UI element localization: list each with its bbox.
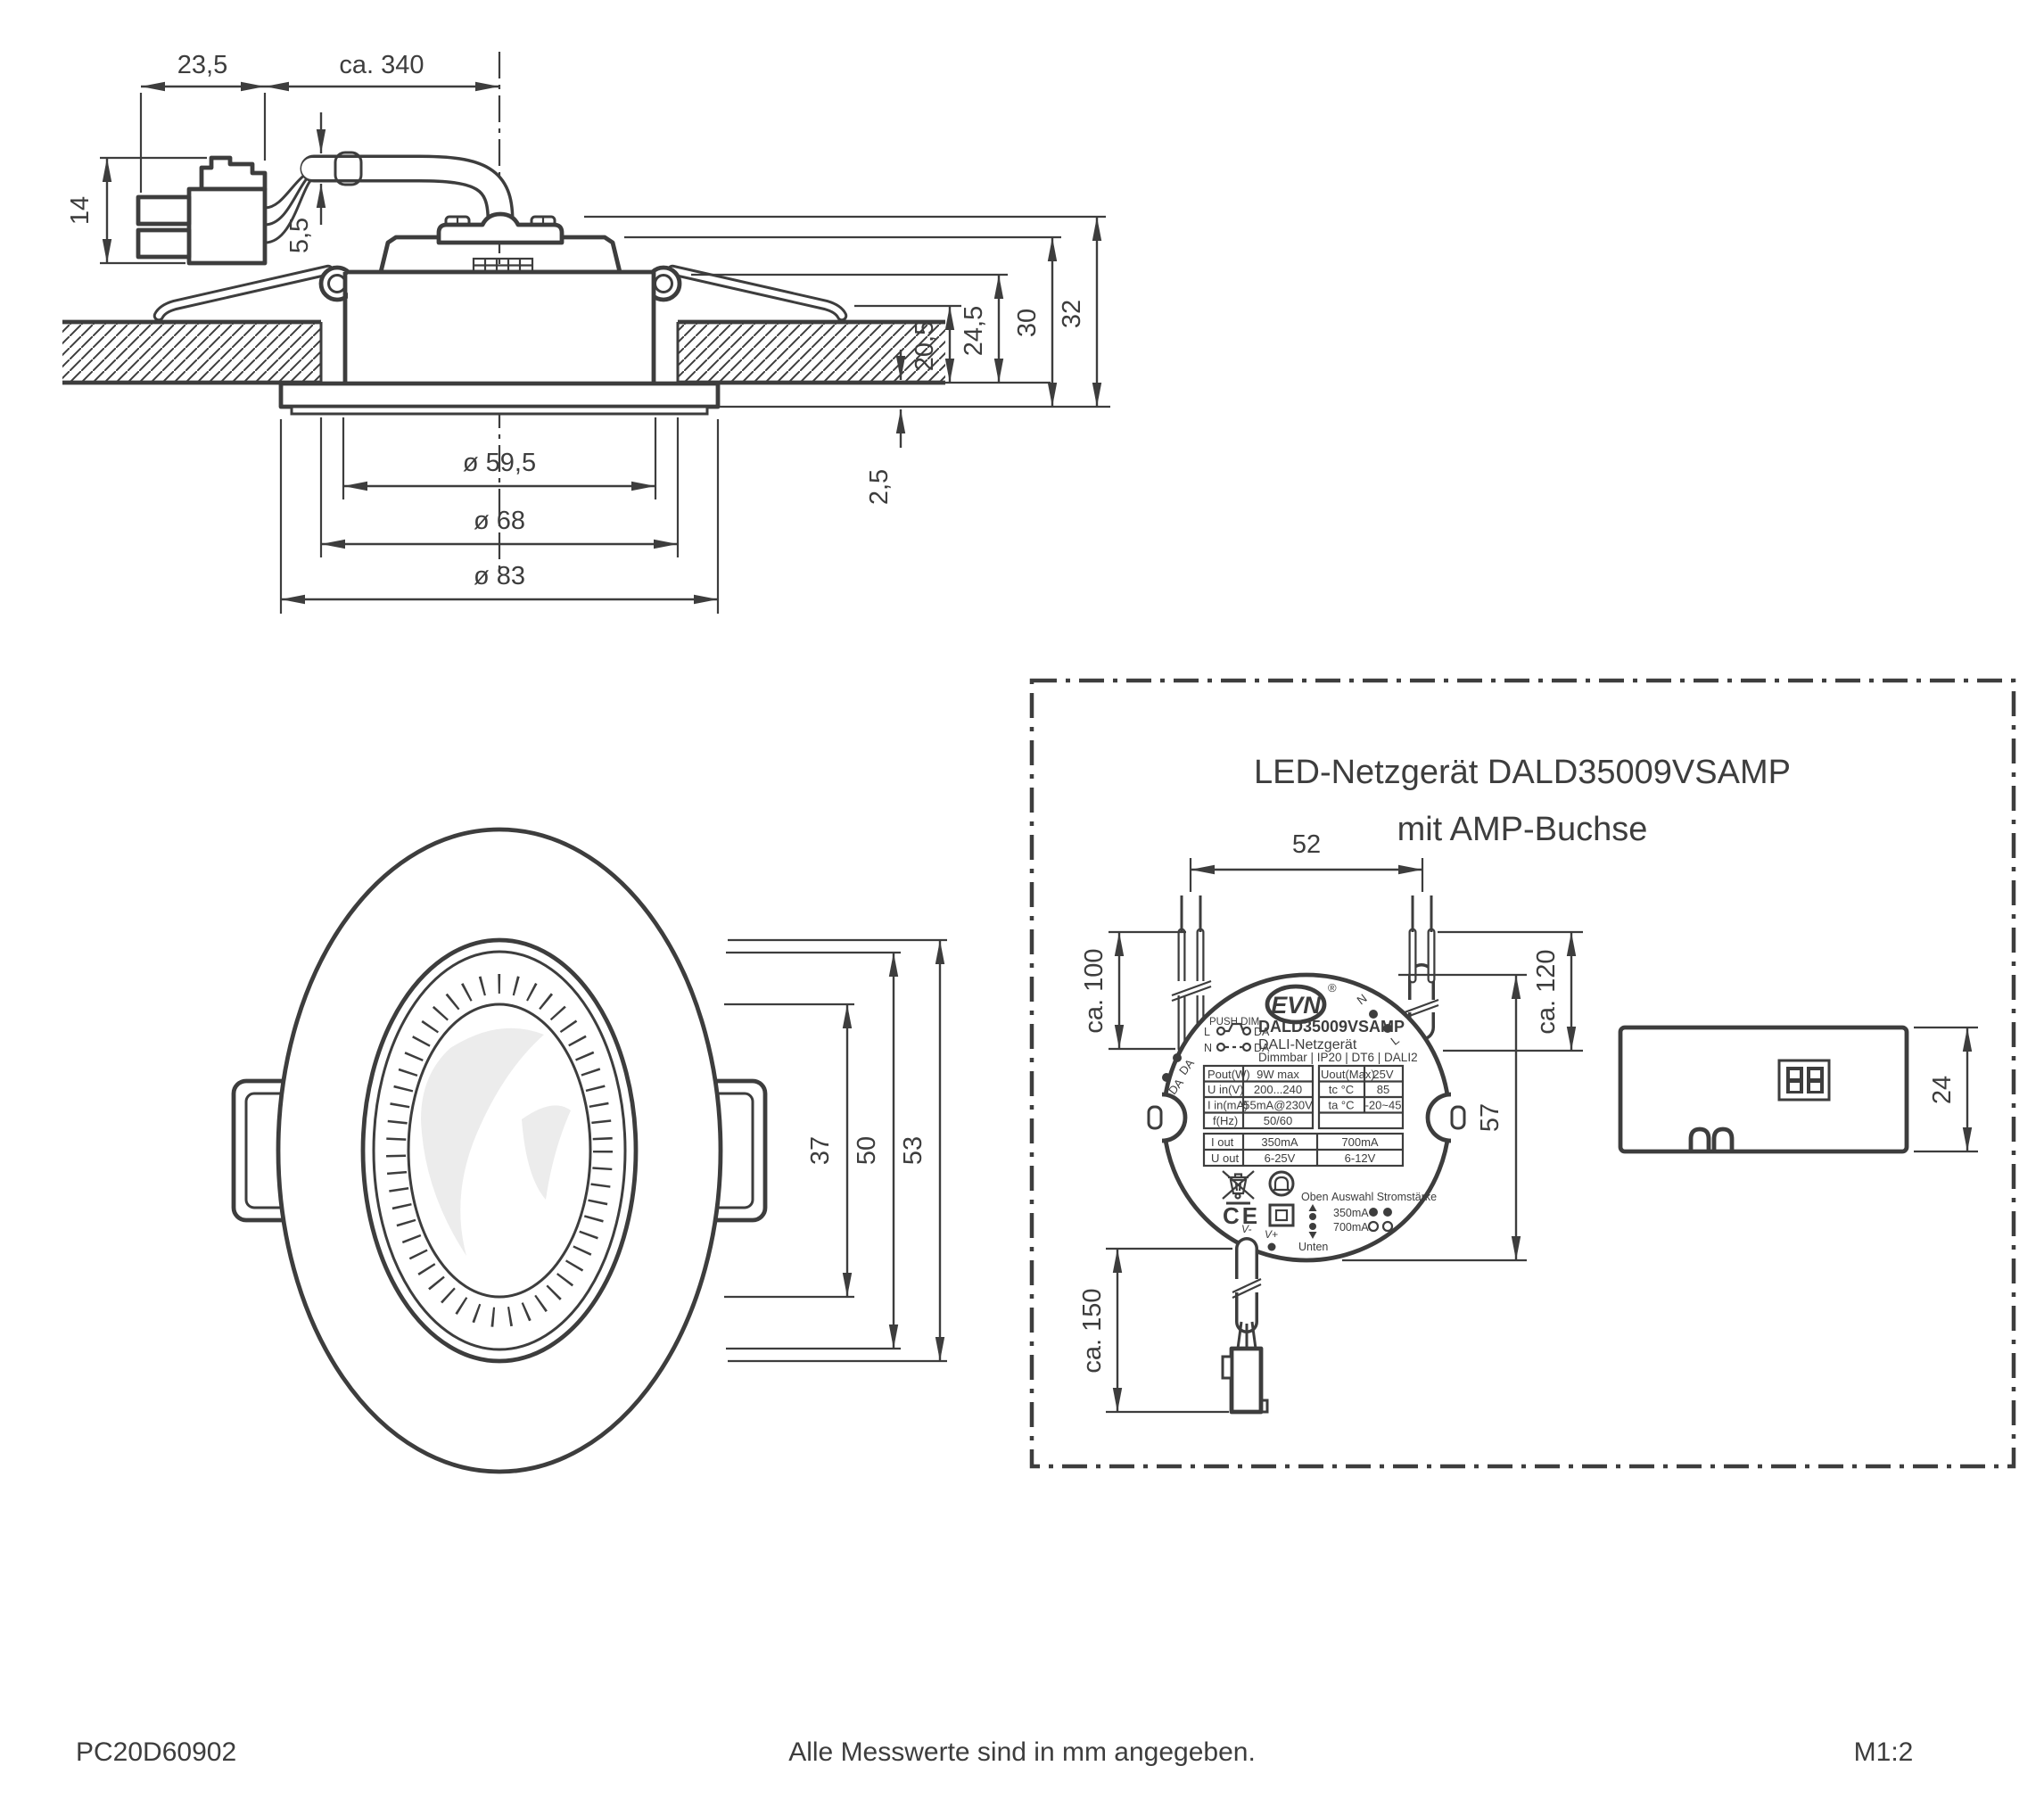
dim-side-24: 24 [1928, 1076, 1957, 1104]
output-cable [1223, 1249, 1267, 1412]
push-dim-l: L [1204, 1026, 1210, 1038]
dim-dia-59-5: ø 59,5 [463, 449, 536, 477]
cell-iin-value: 55mA@230V [1243, 1099, 1313, 1112]
cell-uin-value: 200...240 [1254, 1083, 1302, 1096]
ce-mark: CE [1223, 1202, 1260, 1229]
dim-recess-20-5: 20,5 [911, 321, 939, 371]
front-view: 37 50 53 [234, 829, 947, 1472]
drawing-scale: M1:2 [1854, 1737, 1914, 1767]
cell-iin-label: I in(mA) [1207, 1099, 1249, 1112]
cell-uout-612: 6-12V [1345, 1151, 1376, 1165]
cell-f-value: 50/60 [1264, 1114, 1293, 1127]
terminal-v-plus: V+ [1265, 1228, 1278, 1241]
push-dim-n: N [1204, 1042, 1212, 1054]
cell-ta-label: ta °C [1328, 1099, 1354, 1112]
cell-uoutmax-label: Uout(Max) [1321, 1068, 1375, 1081]
dim-plug-height: 14 [66, 196, 95, 225]
driver-box: LED-Netzgerät DALD35009VSAMP mit AMP-Buc… [1032, 681, 2014, 1466]
evn-logo-text: EVN [1271, 992, 1321, 1019]
dim-wire-100: ca. 100 [1080, 948, 1109, 1033]
cross-section-view: 23,5 ca. 340 14 5,5 [62, 51, 1110, 614]
select-350: 350mA [1333, 1207, 1369, 1219]
plug-latch [202, 158, 265, 189]
footer: PC20D60902 Alle Messwerte sind in mm ang… [76, 1737, 1913, 1767]
push-dim-label: PUSH DIM [1209, 1017, 1259, 1027]
cell-iout-700: 700mA [1341, 1135, 1379, 1149]
dim-dia-83: ø 83 [474, 562, 525, 590]
driver-model: DALD35009VSAMP [1258, 1018, 1405, 1036]
cell-uoutmax-value: 25V [1372, 1068, 1393, 1081]
dim-cable-diameter: 5,5 [285, 218, 314, 253]
dim-cable-150: ca. 150 [1078, 1288, 1107, 1373]
unten-label: Unten [1298, 1241, 1328, 1253]
dim-driver-52: 52 [1292, 830, 1321, 859]
driver-side-view: 24 [1620, 1027, 1978, 1151]
dim-connector-width: 23,5 [177, 51, 227, 79]
dim-recess-24-5: 24,5 [960, 306, 988, 356]
driver-title-line1: LED-Netzgerät DALD35009VSAMP [1254, 754, 1791, 791]
cell-pout-value: 9W max [1257, 1068, 1299, 1081]
cell-iout-350: 350mA [1261, 1135, 1298, 1149]
dim-wire-120: ca. 120 [1532, 949, 1561, 1034]
cell-f-label: f(Hz) [1213, 1114, 1238, 1127]
technical-drawing: 23,5 ca. 340 14 5,5 [0, 0, 2044, 1799]
push-dim-da2: DA [1254, 1042, 1270, 1054]
plug-body [189, 189, 265, 263]
dim-height-30: 30 [1013, 309, 1042, 337]
cell-pout-label: Pout(W) [1207, 1068, 1250, 1081]
dim-front-37: 37 [806, 1136, 835, 1165]
plug-pin-upper [138, 197, 189, 224]
push-dim-da1: DA [1254, 1026, 1270, 1038]
plug-pin-lower [138, 230, 189, 257]
auswahl-label: Auswahl Stromstärke [1331, 1191, 1437, 1203]
dim-front-50: 50 [853, 1136, 881, 1165]
luminaire-can [345, 272, 654, 384]
dip-switch [1779, 1060, 1829, 1100]
measurement-note: Alle Messwerte sind in mm angegeben. [788, 1737, 1256, 1767]
dim-dia-68: ø 68 [474, 507, 525, 535]
connection-cable [312, 153, 500, 220]
dim-front-53: 53 [899, 1136, 927, 1165]
technical-drawing-page: 23,5 ca. 340 14 5,5 [0, 0, 2044, 1799]
dim-trim-2-5: 2,5 [865, 469, 894, 505]
cell-ta-value: -20~45 [1365, 1099, 1402, 1112]
trim-ring [281, 384, 718, 414]
amp-socket [1232, 1349, 1261, 1412]
cell-tc-value: 85 [1377, 1083, 1389, 1096]
cell-iout-label: I out [1211, 1135, 1234, 1149]
registered-mark: ® [1328, 981, 1337, 994]
oben-label: Oben [1301, 1191, 1329, 1203]
driver-title-line2: mit AMP-Buchse [1397, 811, 1648, 848]
document-number: PC20D60902 [76, 1737, 236, 1767]
dim-driver-57: 57 [1476, 1103, 1504, 1132]
dim-cable-length: ca. 340 [339, 51, 424, 79]
cell-uout-625: 6-25V [1265, 1151, 1296, 1165]
dim-height-32: 32 [1058, 300, 1086, 328]
luminaire-top-cap [439, 214, 562, 243]
select-700: 700mA [1333, 1221, 1369, 1234]
current-selection: Auswahl Stromstärke 350mA 700mA [1331, 1191, 1437, 1234]
driver-features: Dimmbar | IP20 | DT6 | DALI2 [1258, 1051, 1418, 1064]
cell-uin-label: U in(V) [1207, 1083, 1243, 1096]
cell-uout-label: U out [1211, 1151, 1239, 1165]
cell-tc-label: tc °C [1329, 1083, 1354, 1096]
